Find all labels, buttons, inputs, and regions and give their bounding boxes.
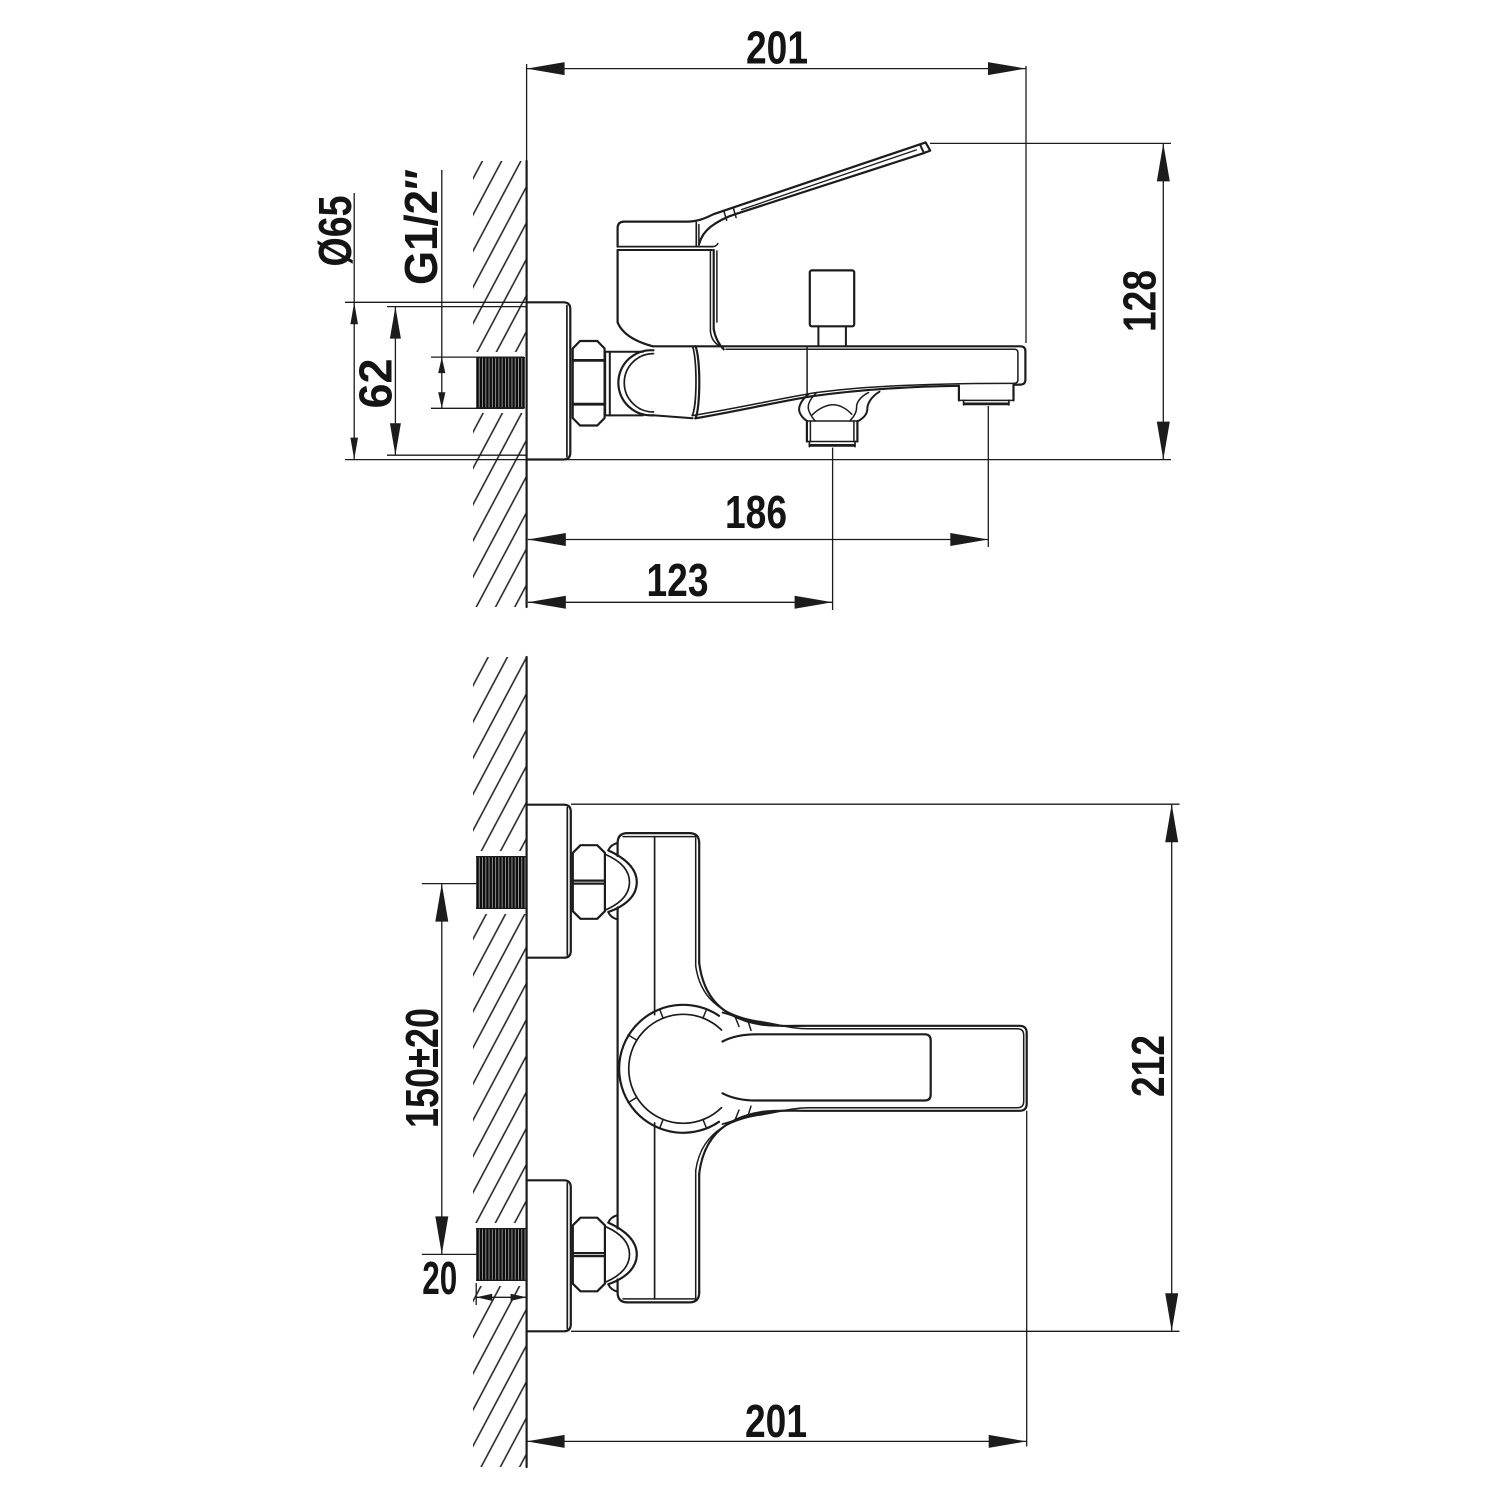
svg-text:128: 128 bbox=[1114, 270, 1166, 332]
svg-text:201: 201 bbox=[746, 22, 808, 74]
svg-text:Ø65: Ø65 bbox=[309, 196, 361, 267]
svg-text:212: 212 bbox=[1122, 1035, 1174, 1097]
svg-text:20: 20 bbox=[422, 1252, 457, 1304]
svg-text:201: 201 bbox=[745, 1395, 807, 1447]
svg-text:186: 186 bbox=[725, 486, 787, 538]
svg-text:150±20: 150±20 bbox=[396, 1008, 448, 1128]
svg-text:62: 62 bbox=[350, 359, 402, 409]
svg-text:G1/2″: G1/2″ bbox=[395, 169, 447, 285]
svg-text:123: 123 bbox=[647, 554, 709, 606]
